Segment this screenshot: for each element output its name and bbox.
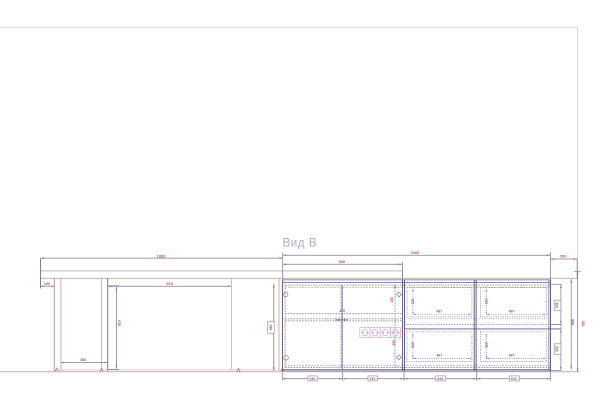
svg-text:640: 640	[269, 324, 273, 330]
svg-text:544: 544	[437, 377, 443, 381]
svg-text:305: 305	[555, 346, 559, 352]
svg-text:440: 440	[309, 377, 315, 381]
svg-text:350: 350	[80, 358, 86, 362]
svg-text:220: 220	[411, 298, 415, 304]
svg-text:750: 750	[581, 321, 585, 327]
svg-text:220: 220	[411, 342, 415, 348]
svg-text:220: 220	[484, 298, 488, 304]
svg-text:440: 440	[369, 377, 375, 381]
svg-text:305: 305	[555, 302, 559, 308]
svg-text:220: 220	[484, 342, 488, 348]
svg-text:200: 200	[560, 254, 567, 259]
svg-text:610: 610	[118, 320, 122, 326]
svg-text:487: 487	[436, 309, 442, 313]
svg-text:925: 925	[166, 281, 173, 286]
svg-text:544: 544	[511, 377, 517, 381]
svg-text:688: 688	[571, 319, 575, 325]
svg-text:175: 175	[339, 309, 345, 313]
svg-text:487: 487	[509, 353, 515, 357]
svg-text:100: 100	[44, 282, 50, 286]
svg-text:2000: 2000	[411, 250, 421, 255]
svg-text:250: 250	[392, 340, 396, 346]
svg-text:Вид В: Вид В	[283, 237, 318, 250]
svg-text:900: 900	[339, 259, 346, 264]
svg-text:1800: 1800	[157, 254, 167, 259]
svg-text:230: 230	[390, 297, 394, 303]
svg-text:487: 487	[436, 353, 442, 357]
svg-text:487: 487	[509, 309, 515, 313]
